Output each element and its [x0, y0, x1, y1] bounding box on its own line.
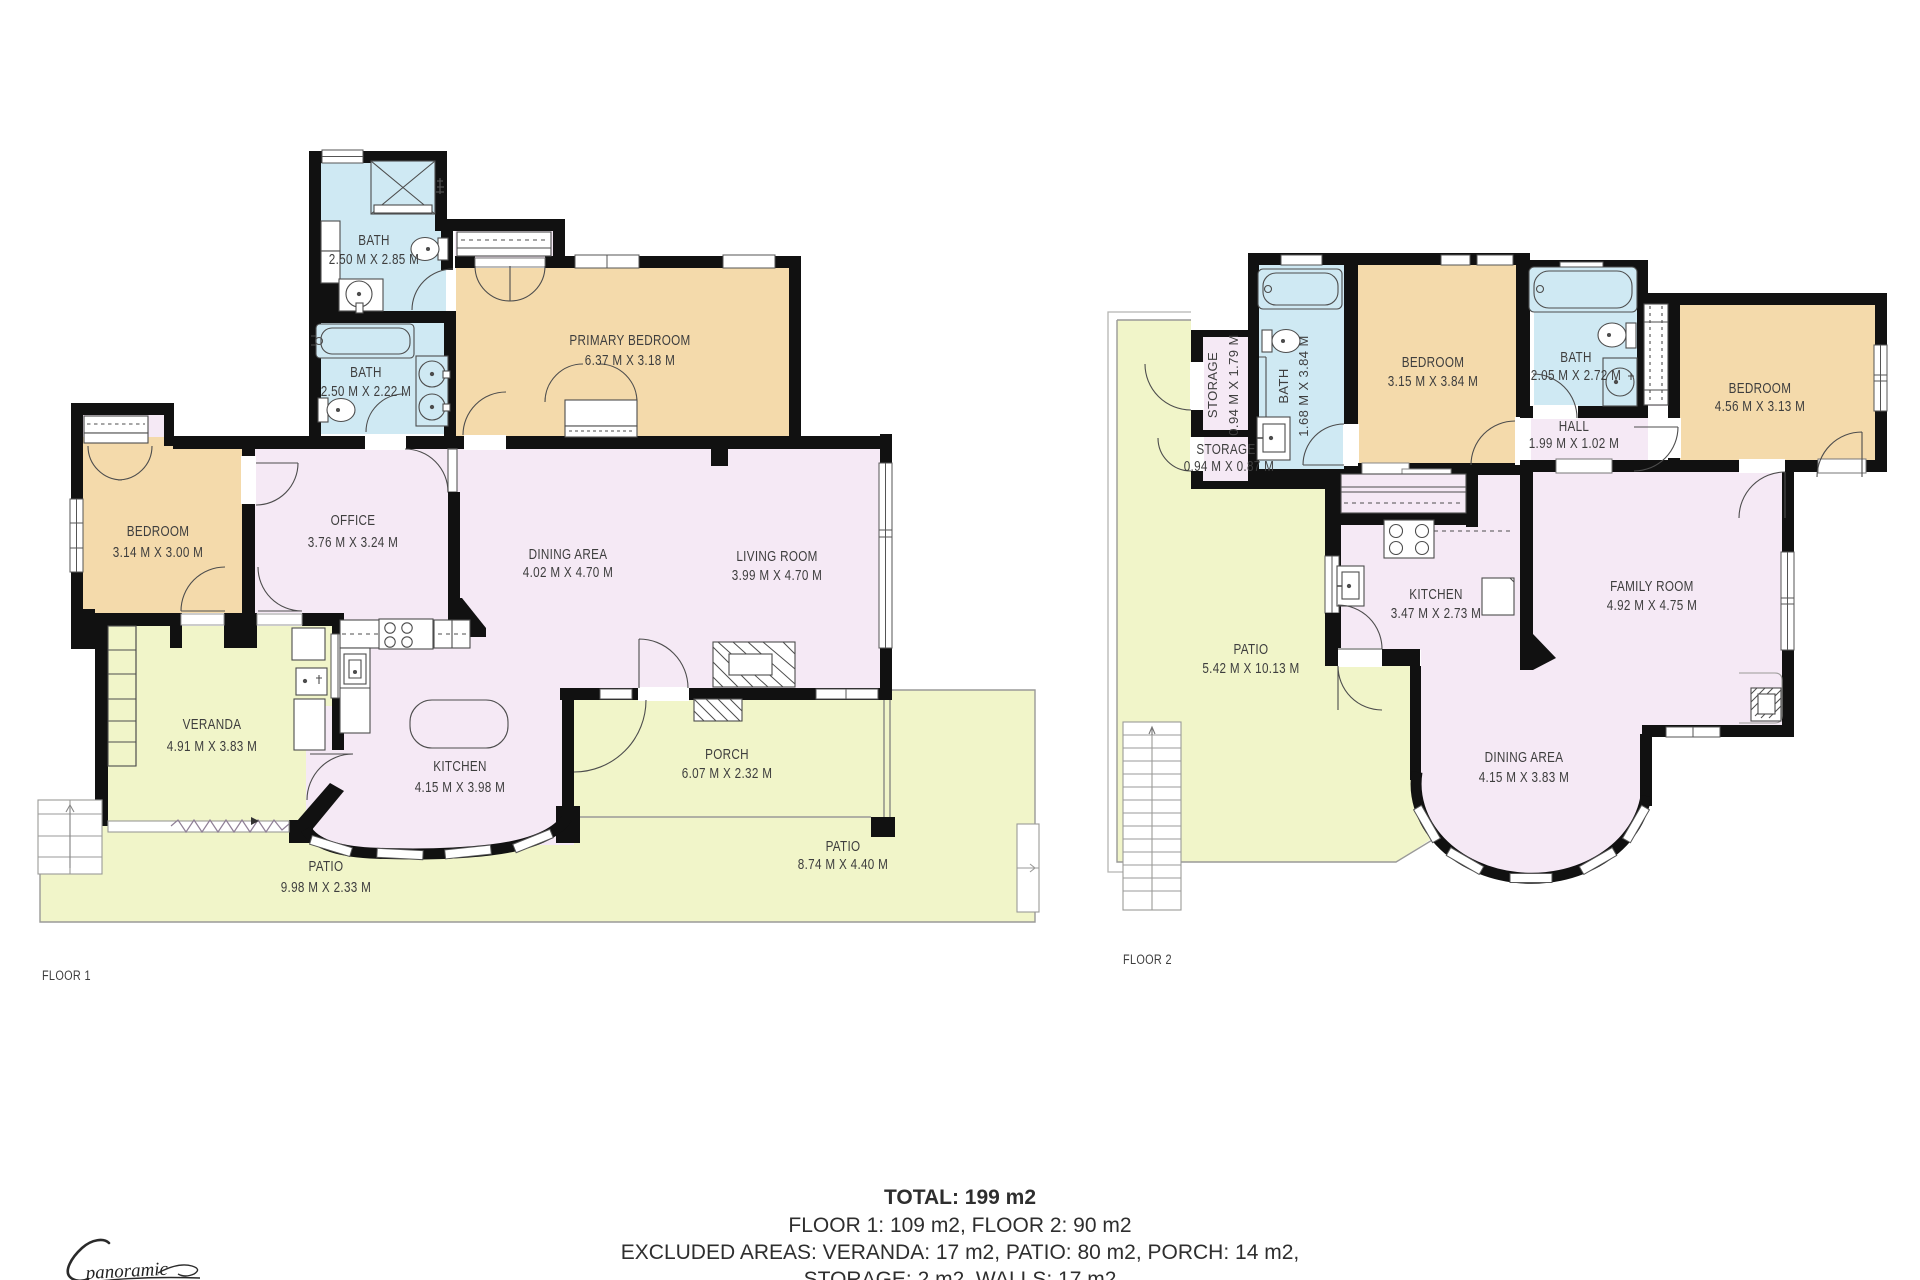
svg-text:panoramic: panoramic: [83, 1259, 169, 1280]
svg-text:FAMILY ROOM: FAMILY ROOM: [1610, 578, 1694, 595]
svg-text:2.50 M X 2.22 M: 2.50 M X 2.22 M: [321, 383, 411, 400]
svg-text:DINING AREA: DINING AREA: [1485, 749, 1564, 766]
svg-text:2.50 M X 2.85 M: 2.50 M X 2.85 M: [329, 251, 419, 268]
svg-text:FLOOR 2: FLOOR 2: [1123, 952, 1172, 968]
svg-text:0.94 M X 1.79 M: 0.94 M X 1.79 M: [1226, 334, 1241, 435]
svg-text:6.07 M X 2.32 M: 6.07 M X 2.32 M: [682, 765, 772, 782]
svg-text:PATIO: PATIO: [1234, 641, 1269, 658]
svg-text:BATH: BATH: [1276, 368, 1291, 403]
svg-text:FLOOR 1: 109 m2, FLOOR 2: 90 m: FLOOR 1: 109 m2, FLOOR 2: 90 m2: [788, 1214, 1131, 1237]
svg-text:FLOOR 1: FLOOR 1: [42, 968, 91, 984]
svg-text:8.74 M X 4.40 M: 8.74 M X 4.40 M: [798, 856, 888, 873]
svg-text:STORAGE: STORAGE: [1196, 441, 1255, 458]
svg-text:PORCH: PORCH: [705, 746, 749, 763]
svg-text:4.02 M X 4.70 M: 4.02 M X 4.70 M: [523, 564, 613, 581]
svg-text:4.15 M X 3.83 M: 4.15 M X 3.83 M: [1479, 769, 1569, 786]
svg-text:1.68 M X 3.84 M: 1.68 M X 3.84 M: [1296, 335, 1311, 436]
svg-text:KITCHEN: KITCHEN: [433, 758, 486, 775]
svg-text:1.99 M X 1.02 M: 1.99 M X 1.02 M: [1529, 435, 1619, 452]
svg-text:BEDROOM: BEDROOM: [1402, 354, 1465, 371]
svg-text:KITCHEN: KITCHEN: [1409, 586, 1462, 603]
svg-text:VERANDA: VERANDA: [183, 716, 242, 733]
svg-text:3.99 M X 4.70 M: 3.99 M X 4.70 M: [732, 567, 822, 584]
svg-text:3.15 M X 3.84 M: 3.15 M X 3.84 M: [1388, 373, 1478, 390]
svg-text:4.56 M X 3.13 M: 4.56 M X 3.13 M: [1715, 398, 1805, 415]
svg-text:0.94 M X 0.87 M: 0.94 M X 0.87 M: [1184, 458, 1274, 475]
svg-text:HALL: HALL: [1559, 418, 1590, 435]
svg-text:EXCLUDED AREAS: VERANDA: 17 m2: EXCLUDED AREAS: VERANDA: 17 m2, PATIO: 8…: [621, 1241, 1299, 1264]
svg-text:STORAGE: 2 m2, WALLS: 17 m2: STORAGE: 2 m2, WALLS: 17 m2: [804, 1268, 1117, 1280]
svg-text:BATH: BATH: [1560, 349, 1592, 366]
svg-text:2.05 M X 2.72 M: 2.05 M X 2.72 M: [1531, 367, 1621, 384]
svg-text:3.47 M X 2.73 M: 3.47 M X 2.73 M: [1391, 605, 1481, 622]
svg-text:PATIO: PATIO: [826, 838, 861, 855]
svg-text:BEDROOM: BEDROOM: [1729, 380, 1792, 397]
svg-text:PATIO: PATIO: [309, 858, 344, 875]
svg-text:BEDROOM: BEDROOM: [127, 523, 190, 540]
svg-text:4.15 M X 3.98 M: 4.15 M X 3.98 M: [415, 779, 505, 796]
svg-text:4.92 M X 4.75 M: 4.92 M X 4.75 M: [1607, 597, 1697, 614]
svg-text:4.91 M X 3.83 M: 4.91 M X 3.83 M: [167, 738, 257, 755]
svg-text:STORAGE: STORAGE: [1205, 352, 1220, 418]
svg-text:DINING AREA: DINING AREA: [529, 546, 608, 563]
svg-text:BATH: BATH: [350, 364, 382, 381]
svg-text:OFFICE: OFFICE: [331, 512, 376, 529]
svg-text:3.76 M X 3.24 M: 3.76 M X 3.24 M: [308, 534, 398, 551]
svg-text:5.42 M X 10.13 M: 5.42 M X 10.13 M: [1202, 660, 1299, 677]
svg-text:3.14 M X 3.00 M: 3.14 M X 3.00 M: [113, 544, 203, 561]
svg-text:9.98 M X 2.33 M: 9.98 M X 2.33 M: [281, 879, 371, 896]
svg-text:TOTAL: 199 m2: TOTAL: 199 m2: [884, 1186, 1036, 1209]
svg-text:PRIMARY BEDROOM: PRIMARY BEDROOM: [569, 332, 690, 349]
svg-text:BATH: BATH: [358, 232, 390, 249]
svg-text:6.37 M X 3.18 M: 6.37 M X 3.18 M: [585, 352, 675, 369]
svg-text:LIVING ROOM: LIVING ROOM: [736, 548, 817, 565]
